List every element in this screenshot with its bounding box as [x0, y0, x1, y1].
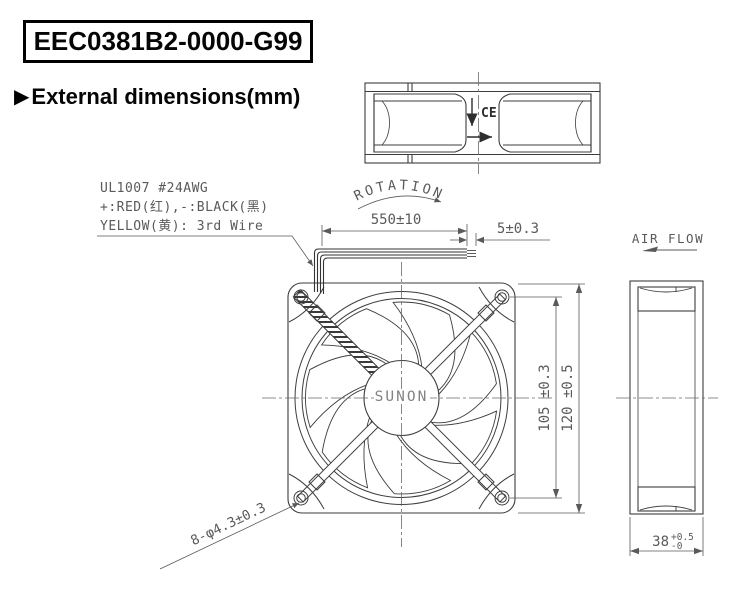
- frame-size-dim: 120 ±0.5: [560, 364, 576, 431]
- wire-spec-line1: UL1007 #24AWG: [100, 181, 208, 196]
- air-flow-label: AIR FLOW: [632, 231, 704, 246]
- depth-dim-tol-minus: -0: [671, 541, 683, 552]
- top-view-outline: [365, 83, 600, 163]
- wire-spec-line3: YELLOW(黄): 3rd Wire: [100, 219, 263, 234]
- fan-side-view: [616, 281, 718, 514]
- depth-dim: 38: [652, 534, 669, 550]
- wire-spec-line2: +:RED(红),-:BLACK(黑): [100, 199, 269, 215]
- brand-label: SUNON: [375, 389, 429, 405]
- mounting-hole-dim: 8-φ4.3±0.3: [188, 500, 268, 549]
- top-view-right-bobbin: [499, 94, 591, 152]
- ce-mark: CE: [481, 106, 497, 121]
- wire-spec-leader: [97, 236, 313, 266]
- rotation-label: ROTATION: [351, 177, 446, 204]
- strip-length-dim: 5±0.3: [497, 221, 539, 237]
- wire-length-dim: 550±10: [371, 212, 422, 228]
- side-view-outline: [630, 281, 703, 514]
- technical-drawing: CE: [0, 0, 750, 590]
- fan-top-view: CE: [365, 72, 600, 174]
- hole-pitch-dim: 105 ±0.3: [537, 364, 553, 431]
- lead-wires: [315, 249, 477, 294]
- drawing-canvas: EEC0381B2-0000-G99 ▶ External dimensions…: [0, 0, 750, 590]
- top-view-left-bobbin: [374, 94, 466, 152]
- fan-front-view: SUNON: [262, 249, 553, 547]
- mounting-hole-leader: [160, 503, 299, 569]
